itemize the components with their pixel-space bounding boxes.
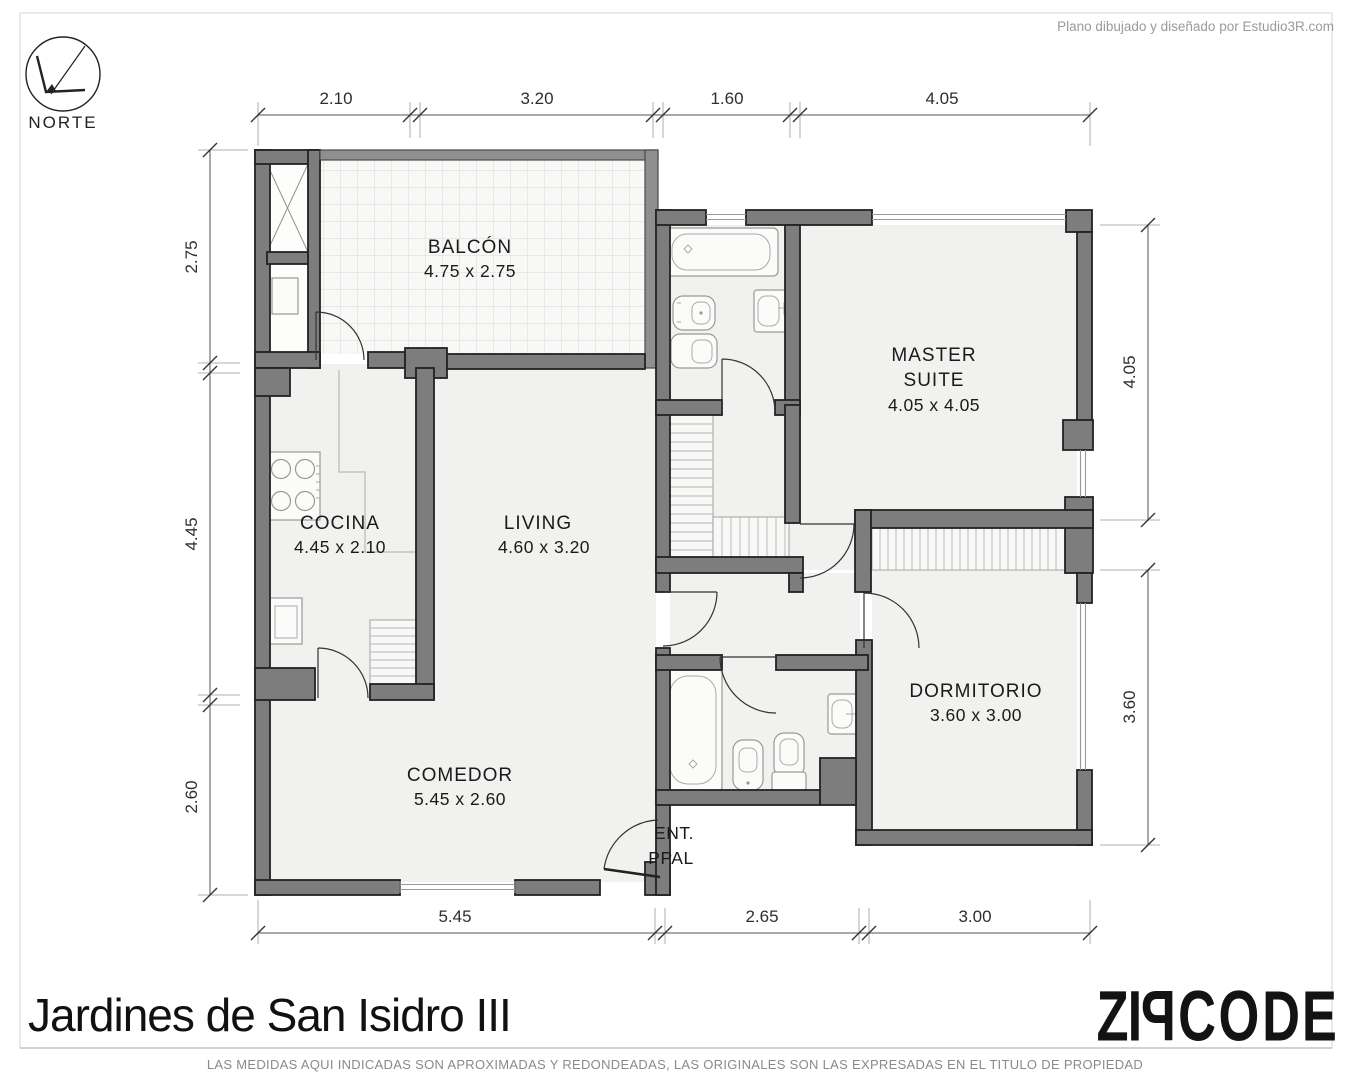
dormitorio-size: 3.60 x 3.00 [930, 705, 1022, 725]
north-arrow-icon [51, 46, 85, 94]
logo-letter: O [1219, 980, 1260, 1052]
toilet [673, 296, 715, 330]
plan-sheet: BALCÓN 4.75 x 2.75 COCINA 4.45 x 2.10 LI… [0, 0, 1350, 1080]
logo-letter: E [1302, 980, 1337, 1052]
dim-top-3: 1.60 [710, 89, 743, 108]
stove [267, 452, 320, 520]
bidet [733, 740, 763, 790]
bathtub [664, 228, 778, 276]
dim-right-2: 3.60 [1120, 690, 1139, 723]
balcon-size: 4.75 x 2.75 [424, 261, 516, 281]
logo-letter: C [1178, 980, 1216, 1052]
wall-sink [828, 694, 858, 734]
dim-right: 4.05 3.60 [1100, 218, 1160, 852]
dim-top-4: 4.05 [925, 89, 958, 108]
dim-bottom-2: 2.65 [745, 907, 778, 926]
dormitorio-label: DORMITORIO [909, 681, 1042, 702]
logo-letter-mirrored-p: P [1141, 980, 1176, 1052]
master-window [872, 215, 1066, 220]
master-side-window [1081, 450, 1086, 497]
comedor-label: COMEDOR [407, 765, 513, 786]
dormitorio-window [1081, 603, 1086, 770]
master-suite-size: 4.05 x 4.05 [888, 395, 980, 415]
dim-bottom-1: 5.45 [438, 907, 471, 926]
cocina-label: COCINA [300, 513, 380, 534]
bath-window [706, 215, 746, 220]
master-suite-label-2: SUITE [904, 370, 965, 391]
north-compass: NORTE [26, 37, 100, 132]
dim-bottom: 5.45 2.65 3.00 [251, 900, 1097, 944]
plan-title: Jardines de San Isidro III [28, 988, 511, 1042]
floor-plan-drawing: BALCÓN 4.75 x 2.75 COCINA 4.45 x 2.10 LI… [0, 0, 1350, 1080]
bidet [671, 334, 717, 368]
living-size: 4.60 x 3.20 [498, 537, 590, 557]
comedor-size: 5.45 x 2.60 [414, 789, 506, 809]
attribution-text: Plano dibujado y diseñado por Estudio3R.… [1057, 19, 1334, 34]
kitchen-counter-hatch [370, 620, 416, 684]
dim-left-1: 2.75 [182, 240, 201, 273]
north-label: NORTE [28, 113, 97, 132]
compass-circle-icon [26, 37, 100, 111]
dim-left: 2.75 4.45 2.60 [182, 143, 248, 902]
dim-right-1: 4.05 [1120, 355, 1139, 388]
entrance-label-1: ENT. [654, 823, 694, 843]
logo-letter: D [1262, 980, 1300, 1052]
dim-bottom-3: 3.00 [958, 907, 991, 926]
disclaimer-text: LAS MEDIDAS AQUI INDICADAS SON APROXIMAD… [0, 1057, 1350, 1072]
logo-letter: I [1127, 980, 1142, 1052]
wardrobe [872, 528, 1065, 570]
entrance-label-2: PPAL [648, 848, 693, 868]
zipcode-logo: Z I P C O D E [1096, 980, 1338, 1044]
bathtub [664, 668, 722, 792]
living-label: LIVING [504, 513, 572, 534]
dim-top-2: 3.20 [520, 89, 553, 108]
dim-top-1: 2.10 [319, 89, 352, 108]
dim-left-2: 4.45 [182, 517, 201, 550]
balcon-label: BALCÓN [428, 236, 512, 258]
dim-top: 2.10 3.20 1.60 4.05 [251, 89, 1097, 146]
comedor-window [400, 881, 515, 893]
dim-left-3: 2.60 [182, 780, 201, 813]
toilet [772, 733, 806, 791]
logo-letter: Z [1096, 980, 1128, 1052]
cocina-size: 4.45 x 2.10 [294, 537, 386, 557]
master-suite-label-1: MASTER [891, 345, 976, 366]
